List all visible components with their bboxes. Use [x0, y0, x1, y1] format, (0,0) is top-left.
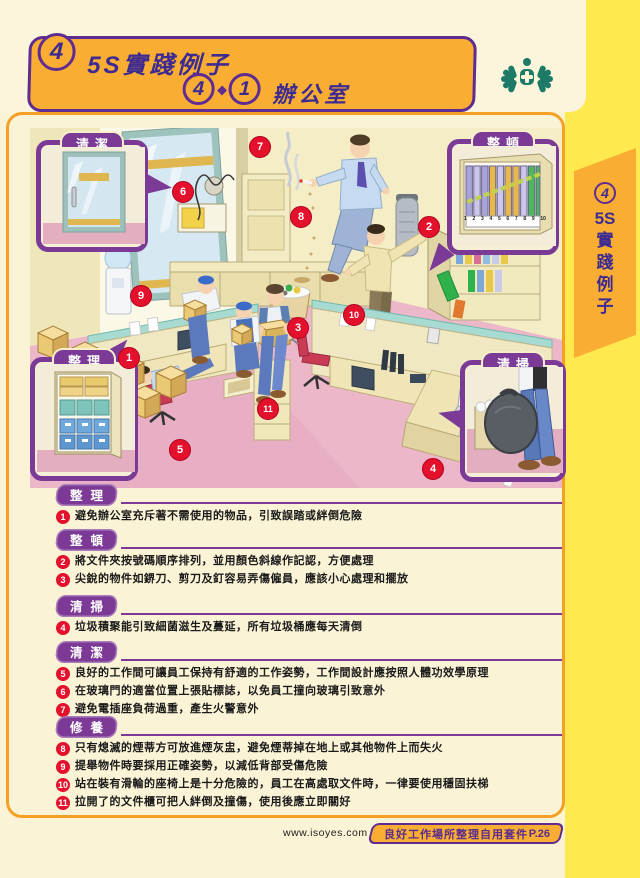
section-tidy-title: 整頓 — [55, 529, 118, 551]
side-tab-char: 踐 — [597, 252, 614, 273]
callout-sort: 整理 — [30, 357, 138, 481]
title-banner: 4 5S實踐例子 4 1 辦公室 — [27, 36, 477, 112]
office-illustration: 清潔 整頓 — [30, 128, 562, 488]
callout-clean-image — [43, 147, 145, 244]
marker-9: 9 — [130, 285, 152, 307]
callout-sweep: 清掃 — [460, 360, 566, 482]
marker-11: 11 — [257, 398, 279, 420]
section-clean: 清潔 5良好的工作間可讓員工保持有舒適的工作姿勢，工作間設計應按照人體功效學原理… — [56, 641, 562, 719]
section-rule — [121, 734, 562, 736]
section-sweep-title: 清掃 — [55, 595, 118, 617]
section-rule — [121, 502, 562, 504]
side-tab-char: 子 — [597, 296, 614, 317]
callout-tail-clean — [145, 174, 174, 197]
section-tidy: 整頓 2將文件夾按號碼順序排列，並用顏色斜線作記認，方便處理 3尖銳的物件如鎅刀… — [56, 529, 562, 589]
section-badge-4: 4 — [182, 73, 215, 105]
list-item: 1避免辦公室充斥著不需使用的物品，引致誤踏或絆倒危險 — [56, 509, 562, 524]
list-item: 4垃圾積聚能引致細菌滋生及蔓延，所有垃圾桶應每天清倒 — [56, 620, 562, 635]
section-rule — [121, 659, 562, 661]
callout-sweep-image — [467, 367, 563, 473]
section-sustain-title: 修養 — [55, 716, 118, 738]
list-item: 5良好的工作間可讓員工保持有舒適的工作姿勢，工作間設計應按照人體功效學原理 — [56, 666, 562, 681]
section-sustain: 修養 8只有熄滅的煙蒂方可放進煙灰盅，避免煙蒂掉在地上或其他物件上而失火 9提舉… — [56, 716, 562, 812]
list-item: 8只有熄滅的煙蒂方可放進煙灰盅，避免煙蒂掉在地上或其他物件上而失火 — [56, 741, 562, 756]
marker-4: 4 — [422, 458, 444, 480]
right-yellow-strip — [565, 0, 640, 878]
section-clean-title: 清潔 — [55, 641, 118, 663]
marker-7: 7 — [249, 136, 271, 158]
marker-2: 2 — [418, 216, 440, 238]
section-sort-title: 整理 — [55, 484, 118, 506]
kit-title: 良好工作場所整理自用套件 — [384, 826, 528, 842]
section-badge-1: 1 — [228, 73, 261, 105]
section-sweep: 清掃 4垃圾積聚能引致細菌滋生及蔓延，所有垃圾桶應每天清倒 — [56, 595, 562, 637]
marker-3: 3 — [287, 317, 309, 339]
section-sort: 整理 1避免辦公室充斥著不需使用的物品，引致誤踏或絆倒危險 — [56, 484, 562, 526]
side-tab-char: 實 — [597, 230, 614, 251]
badge-separator-diamond — [217, 86, 227, 96]
marker-8: 8 — [290, 206, 312, 228]
side-tab-char: 5S — [595, 208, 616, 229]
list-item: 9提舉物件時要採用正確姿勢，以減低背部受傷危險 — [56, 759, 562, 774]
list-item: 6在玻璃門的適當位置上張貼標誌，以免員工撞向玻璃引致意外 — [56, 684, 562, 699]
binder-numbers: 12 34 56 78 910 — [464, 216, 546, 222]
callout-sort-image — [37, 364, 135, 472]
callout-tidy-image — [454, 146, 556, 246]
page-number: P.26 — [529, 828, 550, 840]
list-item: 2將文件夾按號碼順序排列，並用顏色斜線作記認，方便處理 — [56, 554, 562, 569]
chapter-badge: 4 — [37, 33, 76, 71]
callout-clean: 清潔 — [36, 140, 148, 252]
side-tab-badge: 4 — [594, 182, 616, 204]
list-item: 7避免電插座負荷過重，產生火警意外 — [56, 702, 562, 717]
page-subtitle: 辦公室 — [272, 77, 351, 109]
page-title: 5S實踐例子 — [87, 45, 231, 80]
marker-1: 1 — [118, 347, 140, 369]
side-tab: 4 5S 實 踐 例 子 — [574, 148, 636, 358]
list-item: 10站在裝有滑輪的座椅上是十分危險的，員工在高處取文件時，一律要使用穩固扶梯 — [56, 777, 562, 792]
list-item: 11拉開了的文件櫃可把人絆倒及撞傷，使用後應立即關好 — [56, 795, 562, 810]
list-item: 3尖銳的物件如鎅刀、剪刀及釘容易弄傷僱員，應該小心處理和擺放 — [56, 572, 562, 587]
marker-6: 6 — [172, 181, 194, 203]
marker-5: 5 — [169, 439, 191, 461]
organization-logo-icon — [500, 54, 554, 104]
marker-10: 10 — [343, 304, 365, 326]
section-rule — [121, 613, 562, 615]
page: { "page": { "bg": "#FAF3D6", "accent_ora… — [0, 0, 640, 878]
section-rule — [121, 547, 562, 549]
callout-tidy: 整頓 12 34 56 78 9 — [447, 139, 559, 255]
side-tab-char: 例 — [597, 274, 614, 295]
footer-kit-pill: 良好工作場所整理自用套件 P.26 — [367, 823, 564, 844]
website-link[interactable]: www.isoyes.com — [283, 827, 368, 839]
